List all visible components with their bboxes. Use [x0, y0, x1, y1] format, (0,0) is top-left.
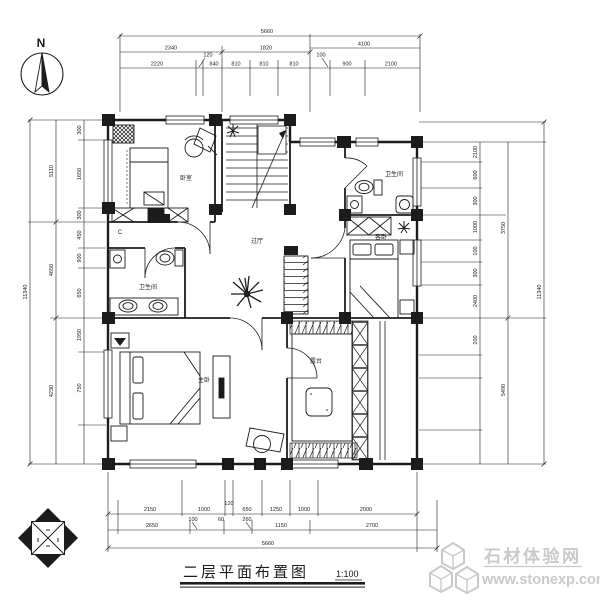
- dim-label: 900: [342, 62, 351, 68]
- dim-label: 300: [77, 125, 83, 134]
- window: [104, 140, 112, 208]
- dim-label: 900: [77, 253, 83, 262]
- dim-label: 200: [473, 335, 479, 344]
- dim-label: 810: [231, 62, 240, 68]
- room-label-bedroom-right: 客卧: [375, 233, 387, 241]
- dim-label: 750: [77, 383, 83, 392]
- watermark-name: 石材体验网: [483, 546, 582, 566]
- room-label-master: 主卧: [198, 376, 210, 384]
- dim-label: 810: [289, 62, 298, 68]
- room-label-bedroom-tl: 卧室: [180, 174, 192, 182]
- hatch-block: [113, 125, 134, 143]
- dim-label: 1000: [473, 221, 479, 233]
- dim-label: 2340: [165, 46, 177, 52]
- closet-mark: C: [118, 230, 123, 236]
- dim-label: 100: [473, 246, 479, 255]
- dim-label: 810: [259, 62, 268, 68]
- dim-label: 4650: [49, 264, 55, 276]
- dim-label: 5660: [261, 29, 273, 35]
- room-label-bath-left: 卫生间: [139, 283, 157, 291]
- dim-label: 2650: [146, 523, 158, 529]
- dim-label: 650: [77, 288, 83, 297]
- dim-label: 1250: [270, 507, 282, 513]
- dim-label: 100: [188, 517, 197, 523]
- window: [130, 460, 196, 468]
- dim-label: 1000: [298, 507, 310, 513]
- dim-label: 2100: [473, 146, 479, 158]
- stair-railing: [284, 246, 308, 314]
- dim-label: 4100: [358, 42, 370, 48]
- dim-label: 1000: [198, 507, 210, 513]
- window: [166, 116, 204, 124]
- room-label-terrace: 露台: [310, 357, 322, 365]
- dim-label: 4230: [49, 385, 55, 397]
- dim-label: 5660: [262, 541, 274, 547]
- watermark-url: www.stonexp.com: [481, 572, 600, 588]
- dim-label: 120: [224, 501, 233, 507]
- north-label: N: [37, 36, 46, 50]
- railing-strip: [352, 321, 368, 460]
- dim-label: 5110: [49, 165, 55, 177]
- window: [230, 116, 278, 124]
- dim-label: 650: [242, 507, 251, 513]
- dim-label: 2700: [366, 523, 378, 529]
- window: [300, 138, 335, 146]
- dim-label: 2400: [473, 295, 479, 307]
- dim-label: 2000: [360, 507, 372, 513]
- dim-label: 60: [218, 517, 224, 523]
- dim-label: 300: [473, 268, 479, 277]
- dim-label: 11340: [537, 285, 543, 300]
- floor-plan-drawing: N 5660 2340 1820 4100 2220 120: [0, 0, 600, 600]
- dim-label: 120: [203, 53, 212, 59]
- window: [104, 350, 112, 418]
- dim-label: 1950: [77, 329, 83, 341]
- hatch-strip: [290, 321, 352, 334]
- drawing-title: 二层平面布置图: [183, 564, 309, 581]
- title-rule-thick: [180, 582, 365, 585]
- drawing-scale: 1:100: [336, 569, 359, 579]
- dim-label: 3750: [501, 222, 507, 234]
- dim-label: 2150: [144, 507, 156, 513]
- dim-label: 2100: [385, 62, 397, 68]
- dim-label: 1650: [77, 168, 83, 180]
- dim-label: 260: [242, 517, 251, 523]
- dim-label: 100: [316, 53, 325, 59]
- room-label-hall: 过厅: [251, 237, 263, 245]
- dim-label: 11340: [23, 285, 29, 300]
- window: [356, 138, 378, 146]
- room-label-bath-right: 卫生间: [385, 170, 403, 178]
- dim-label: 2220: [151, 62, 163, 68]
- dim-label: 1820: [260, 46, 272, 52]
- dim-label: 5490: [501, 384, 507, 396]
- dim-label: 300: [77, 210, 83, 219]
- hatch-strip: [290, 443, 357, 458]
- dim-label: 1150: [275, 523, 287, 529]
- dim-label: 300: [473, 196, 479, 205]
- window: [413, 158, 421, 206]
- dim-label: 450: [77, 230, 83, 239]
- dim-label: 840: [209, 62, 218, 68]
- dim-label: 600: [473, 170, 479, 179]
- title-rule-thin: [180, 587, 365, 588]
